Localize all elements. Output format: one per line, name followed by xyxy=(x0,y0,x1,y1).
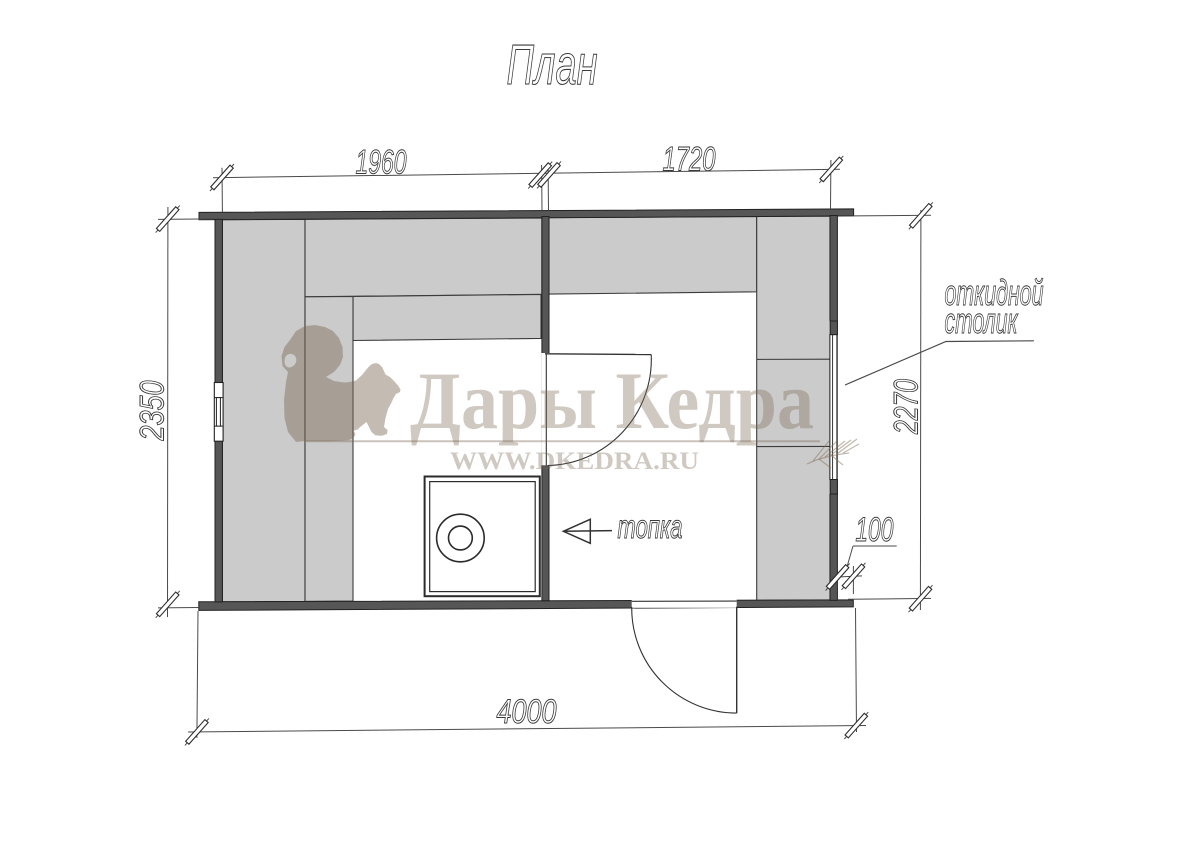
svg-text:столик: столик xyxy=(945,300,1019,341)
svg-text:2350: 2350 xyxy=(133,380,171,441)
svg-text:1960: 1960 xyxy=(356,144,407,182)
svg-text:План: План xyxy=(507,33,598,97)
svg-text:топка: топка xyxy=(618,508,683,545)
svg-text:1720: 1720 xyxy=(663,141,716,179)
svg-text:4000: 4000 xyxy=(497,693,557,731)
svg-text:WWW.DKEDRA.RU: WWW.DKEDRA.RU xyxy=(450,448,699,475)
svg-text:2270: 2270 xyxy=(888,379,926,435)
svg-text:Дары Кедра: Дары Кедра xyxy=(410,355,814,446)
svg-text:100: 100 xyxy=(855,511,893,549)
